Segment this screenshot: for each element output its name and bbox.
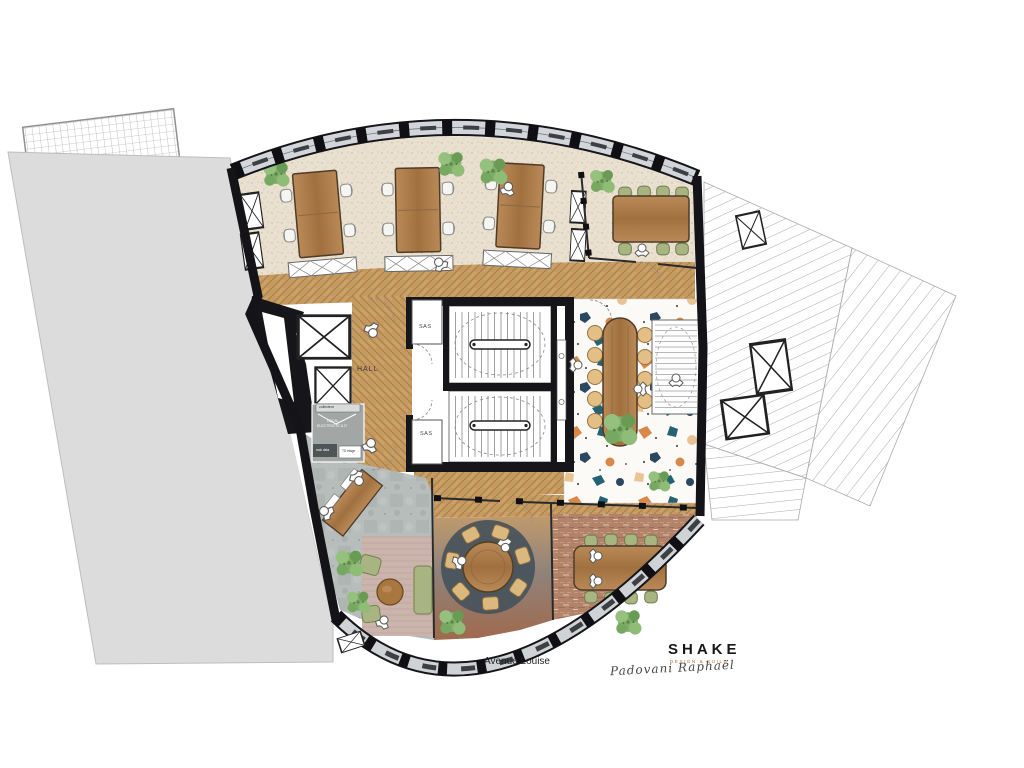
logo-name: SHAKE	[668, 641, 788, 658]
plant	[615, 610, 641, 634]
plant	[480, 159, 508, 185]
skylight-icon	[721, 395, 769, 439]
local-elec-label-line1: LOCAL	[327, 420, 338, 424]
floor-plan-drawing	[0, 0, 1024, 768]
elevator-icon	[298, 316, 350, 359]
corridor-floor-core-south	[414, 470, 570, 494]
neighbor-roof-right	[704, 182, 956, 520]
designer-logo: SHAKE DESIGN & BUILD Padovani Raphaël	[668, 641, 788, 664]
hall-label: HALL	[357, 366, 379, 373]
td-etage-label: TD étage	[342, 450, 355, 453]
round-table-lounge	[441, 520, 535, 614]
plant	[590, 170, 615, 193]
exterior-vent-icon	[337, 631, 364, 653]
collecteur-label: collecteur	[319, 406, 334, 410]
rack-data-label: rack data	[316, 449, 329, 452]
plant	[604, 414, 637, 445]
plant	[336, 551, 364, 577]
sas-top-label: SAS	[419, 325, 432, 331]
tech-room	[312, 404, 364, 462]
skylight-icon	[750, 340, 792, 394]
plant	[347, 592, 370, 614]
elevator-icon	[315, 368, 350, 405]
sas-bottom-label: SAS	[420, 432, 433, 438]
local-elec-label-line2: ELECTRICITE & IT	[317, 425, 347, 429]
open-stair	[652, 320, 700, 414]
plant	[649, 471, 671, 491]
plant	[439, 610, 465, 634]
floor-plan-page: HALL SAS SAS collecteur LOCAL ELECTRICIT…	[0, 0, 1024, 768]
street-label: Avenue Louise	[484, 657, 550, 667]
cabinet-icon	[570, 229, 586, 261]
plant	[438, 152, 464, 176]
